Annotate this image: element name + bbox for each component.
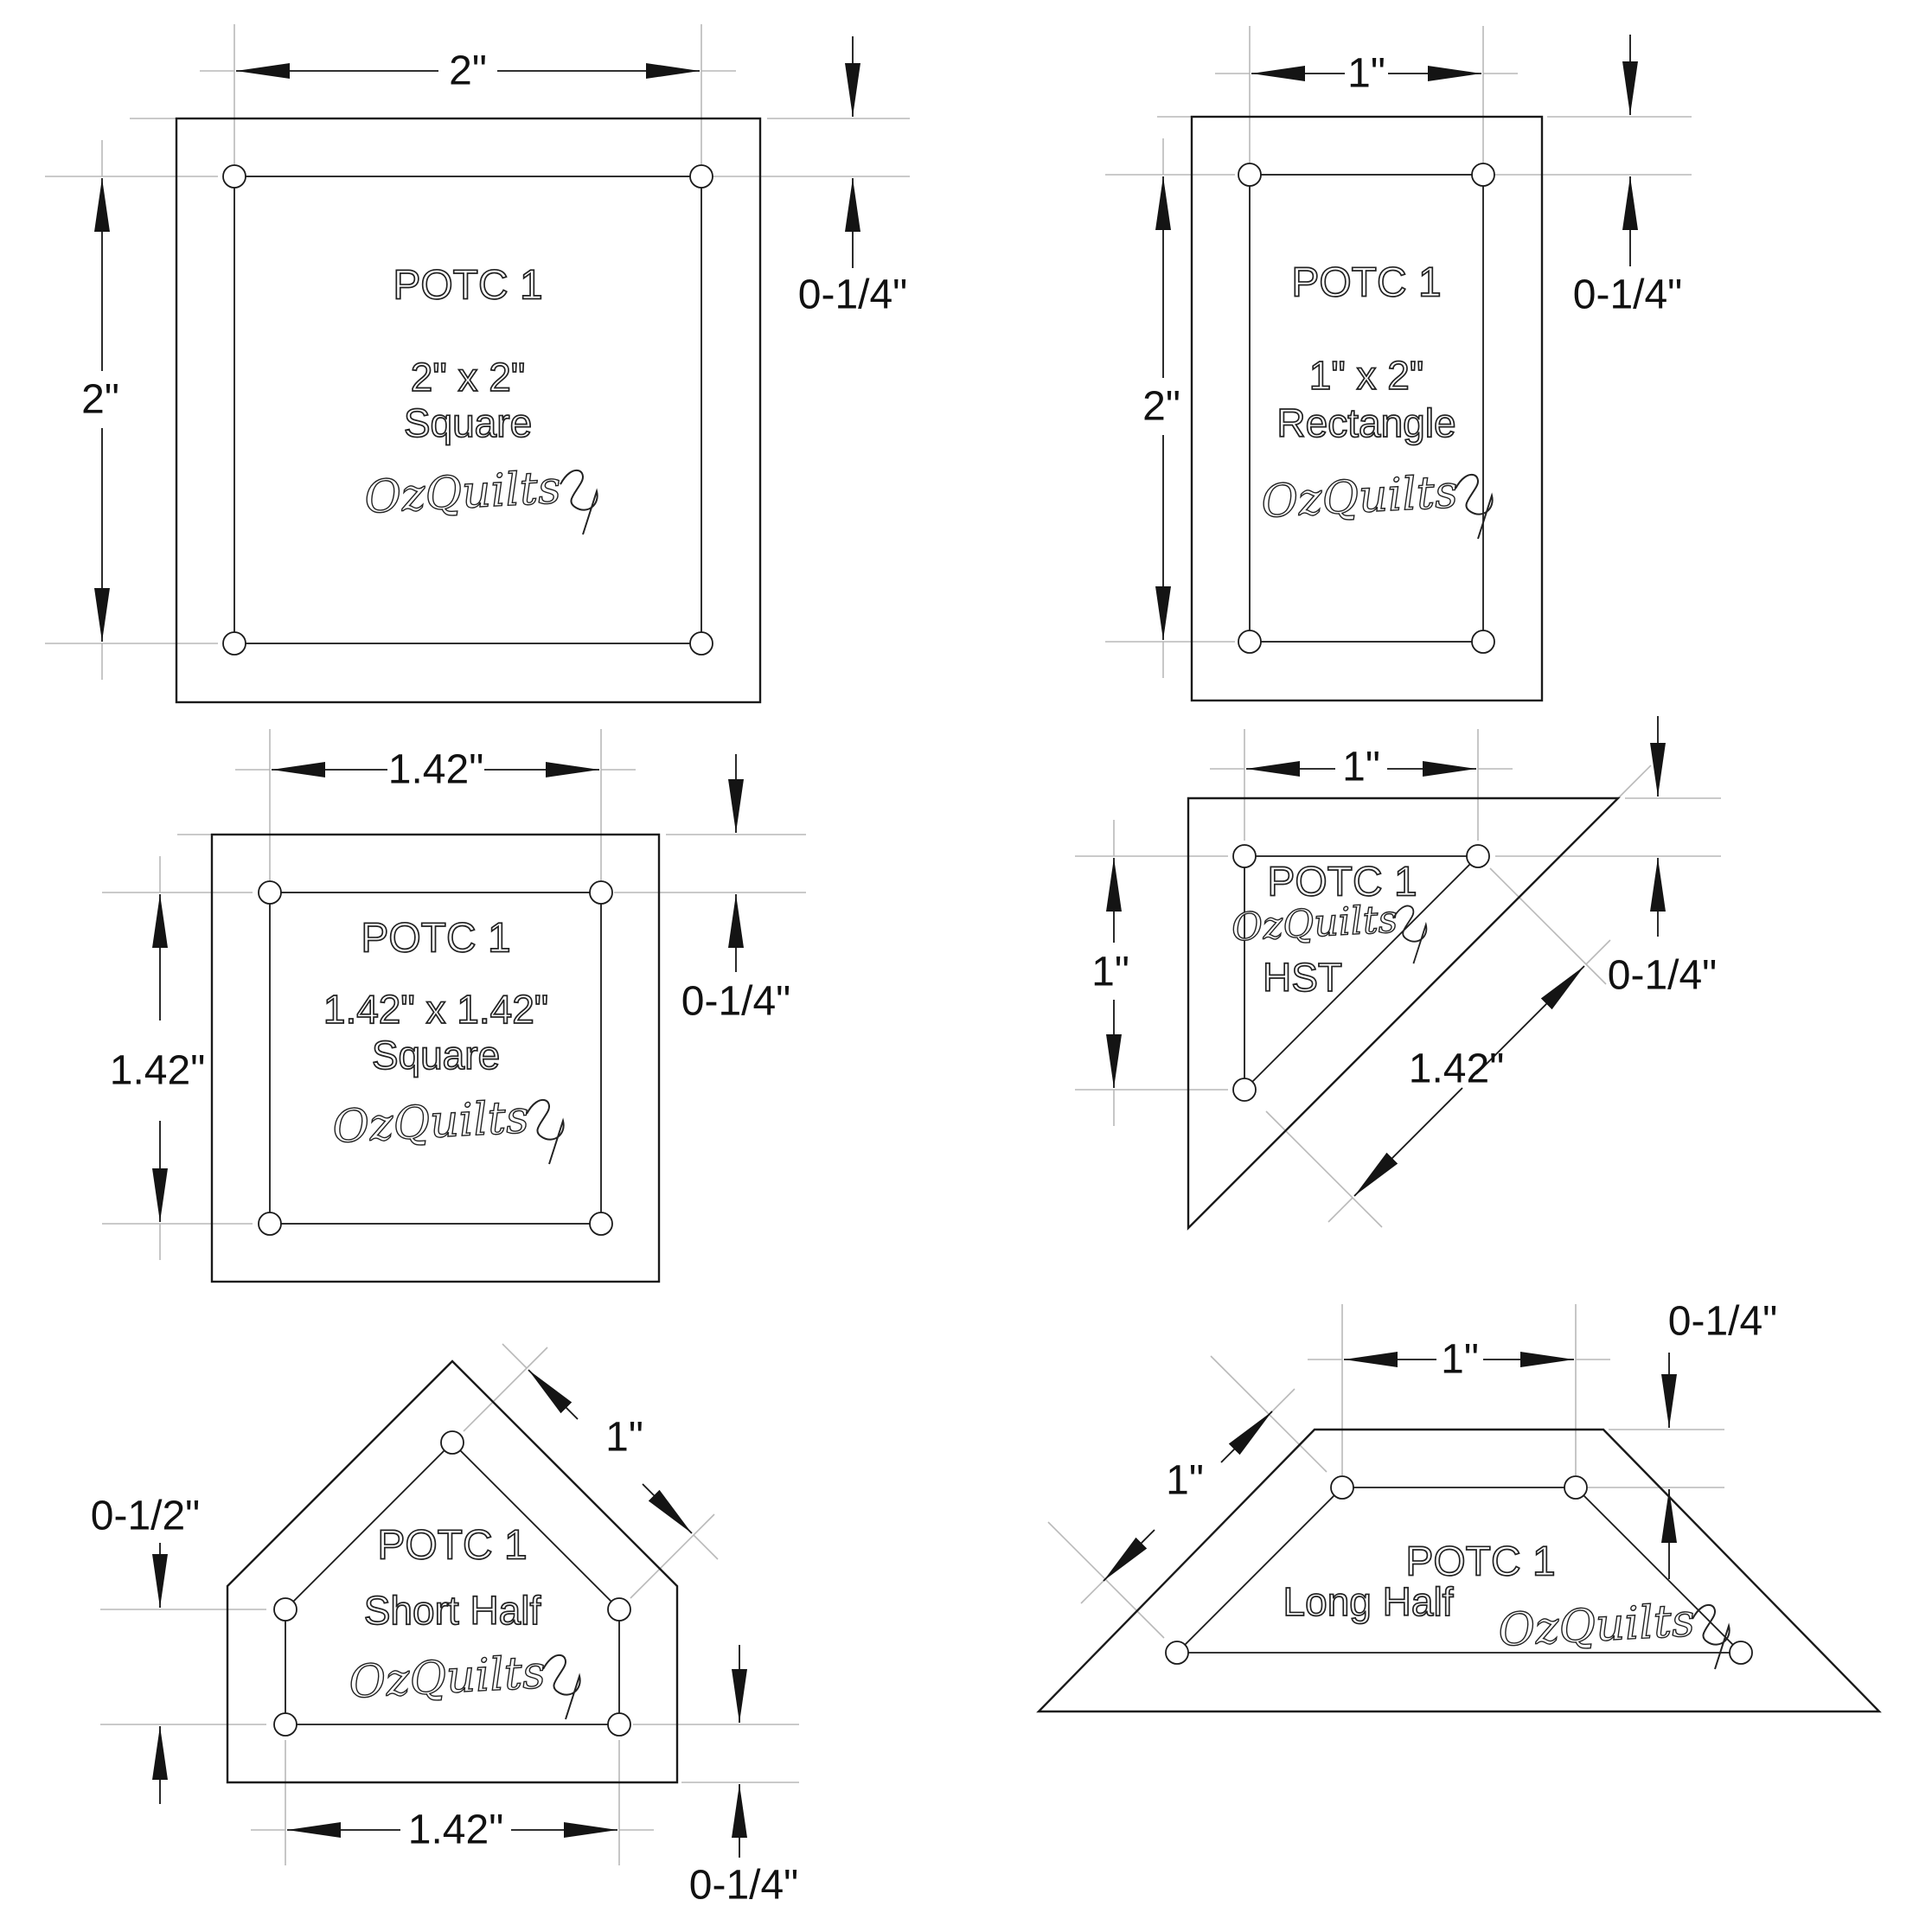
corner-hole	[223, 165, 246, 188]
brand-signature: OzQuilts	[331, 1091, 530, 1154]
dimension-label-bottom: 1.42"	[408, 1807, 503, 1853]
dimension-line	[1221, 1411, 1272, 1462]
brand-signature: OzQuilts	[1260, 466, 1459, 528]
signature-flourish-icon	[1455, 475, 1493, 539]
dimension-label-height: 1.42"	[110, 1048, 205, 1094]
template-square-142: POTC 1 1.42" x 1.42" Square OzQuilts 1.4…	[102, 729, 806, 1282]
dimension-label-seam: 0-1/4"	[1573, 272, 1682, 318]
brand-signature: OzQuilts	[363, 462, 562, 524]
extension-line	[1618, 765, 1651, 798]
dimension-label-slant: 1"	[1166, 1458, 1204, 1504]
corner-hole	[1238, 163, 1261, 186]
signature-flourish-icon	[1692, 1605, 1730, 1669]
quilt-template-drawing-sheet: POTC 1 2" x 2" Square OzQuilts 2" 2" 0-1…	[0, 0, 1932, 1932]
template-long-half: POTC 1 Long Half OzQuilts 1" 0-1/4" 1"	[1039, 1299, 1879, 1712]
dimension-label-seam: 0-1/4"	[798, 272, 907, 318]
template-title: POTC 1	[377, 1523, 527, 1569]
dimension-label-top: 1"	[1441, 1337, 1479, 1383]
corner-hole	[1730, 1641, 1752, 1664]
corner-hole	[690, 165, 713, 188]
corner-hole	[1467, 845, 1489, 867]
template-size-label: 2" x 2"	[411, 355, 525, 400]
corner-hole	[590, 1212, 612, 1235]
corner-hole	[1564, 1476, 1587, 1499]
corner-hole	[1472, 163, 1494, 186]
template-short-half: POTC 1 Short Half OzQuilts 0-1/2" 1" 1.4…	[91, 1344, 799, 1909]
dimension-label-height: 1"	[1091, 950, 1129, 995]
template-shape-label: Rectangle	[1276, 400, 1455, 445]
dimension-label-seam: 0-1/4"	[681, 979, 790, 1025]
corner-hole	[1331, 1476, 1353, 1499]
brand-signature: OzQuilts	[348, 1647, 547, 1709]
corner-hole	[590, 881, 612, 904]
extension-line	[630, 1514, 714, 1598]
dimension-label-seam: 0-1/4"	[1668, 1299, 1777, 1345]
brand-signature: OzQuilts	[1497, 1595, 1696, 1657]
signature-flourish-icon	[543, 1655, 580, 1719]
corner-hole	[259, 1212, 281, 1235]
extension-line	[1266, 1111, 1382, 1227]
extension-line	[1081, 1579, 1105, 1603]
extension-line	[502, 1344, 527, 1368]
template-title: POTC 1	[361, 916, 510, 962]
extension-line	[1328, 1198, 1353, 1222]
extension-line	[1270, 1389, 1295, 1413]
template-title: POTC 1	[1291, 260, 1441, 306]
dimension-label-width: 1"	[1342, 745, 1380, 790]
template-size-label: 1" x 2"	[1309, 353, 1423, 398]
corner-hole	[608, 1598, 630, 1621]
corner-hole	[690, 632, 713, 655]
corner-hole	[441, 1431, 464, 1454]
corner-hole	[1233, 1078, 1256, 1101]
template-shape-label: Long Half	[1283, 1579, 1454, 1624]
signature-flourish-icon	[527, 1100, 564, 1164]
template-shape-label: Short Half	[364, 1588, 541, 1633]
dimension-label-width: 2"	[449, 48, 487, 94]
dimension-label-side: 0-1/2"	[91, 1494, 200, 1539]
dimension-line	[528, 1370, 578, 1419]
corner-hole	[259, 881, 281, 904]
dimension-label-height: 2"	[81, 377, 119, 423]
corner-hole	[608, 1713, 630, 1736]
corner-hole	[1472, 630, 1494, 653]
dimension-line	[1104, 1530, 1155, 1581]
template-rectangle-1x2: POTC 1 1" x 2" Rectangle OzQuilts 1" 2" …	[1105, 26, 1692, 701]
corner-hole	[274, 1598, 297, 1621]
dimension-line	[643, 1484, 692, 1533]
dimension-label-seam: 0-1/4"	[689, 1863, 798, 1909]
dimension-label-hypotenuse: 1.42"	[1409, 1046, 1504, 1092]
dimension-label-slant: 1"	[605, 1415, 643, 1461]
corner-hole	[1238, 630, 1261, 653]
corner-hole	[1233, 845, 1256, 867]
corner-hole	[1166, 1641, 1188, 1664]
dimension-line	[1354, 1088, 1462, 1196]
template-shape-label: Square	[372, 1033, 500, 1078]
template-size-label: 1.42" x 1.42"	[323, 987, 548, 1032]
extension-line	[464, 1347, 547, 1431]
extension-line	[1490, 868, 1606, 984]
signature-flourish-icon	[560, 470, 598, 534]
extension-line	[1048, 1522, 1164, 1638]
template-title: POTC 1	[393, 263, 542, 309]
dimension-label-width: 1"	[1347, 51, 1385, 97]
template-shape-label: HST	[1263, 955, 1342, 1000]
brand-signature: OzQuilts	[1231, 898, 1398, 950]
corner-hole	[274, 1713, 297, 1736]
corner-hole	[223, 632, 246, 655]
dimension-label-width: 1.42"	[388, 747, 483, 793]
template-shape-label: Square	[404, 400, 532, 445]
template-square-2x2: POTC 1 2" x 2" Square OzQuilts 2" 2" 0-1…	[45, 24, 910, 702]
dimension-label-seam: 0-1/4"	[1608, 953, 1717, 999]
template-hst: POTC 1 OzQuilts HST 1" 1" 0-1/4" 1.42"	[1075, 716, 1721, 1228]
extension-line	[694, 1535, 718, 1559]
template-title: POTC 1	[1405, 1539, 1555, 1585]
dimension-label-height: 2"	[1142, 384, 1180, 430]
